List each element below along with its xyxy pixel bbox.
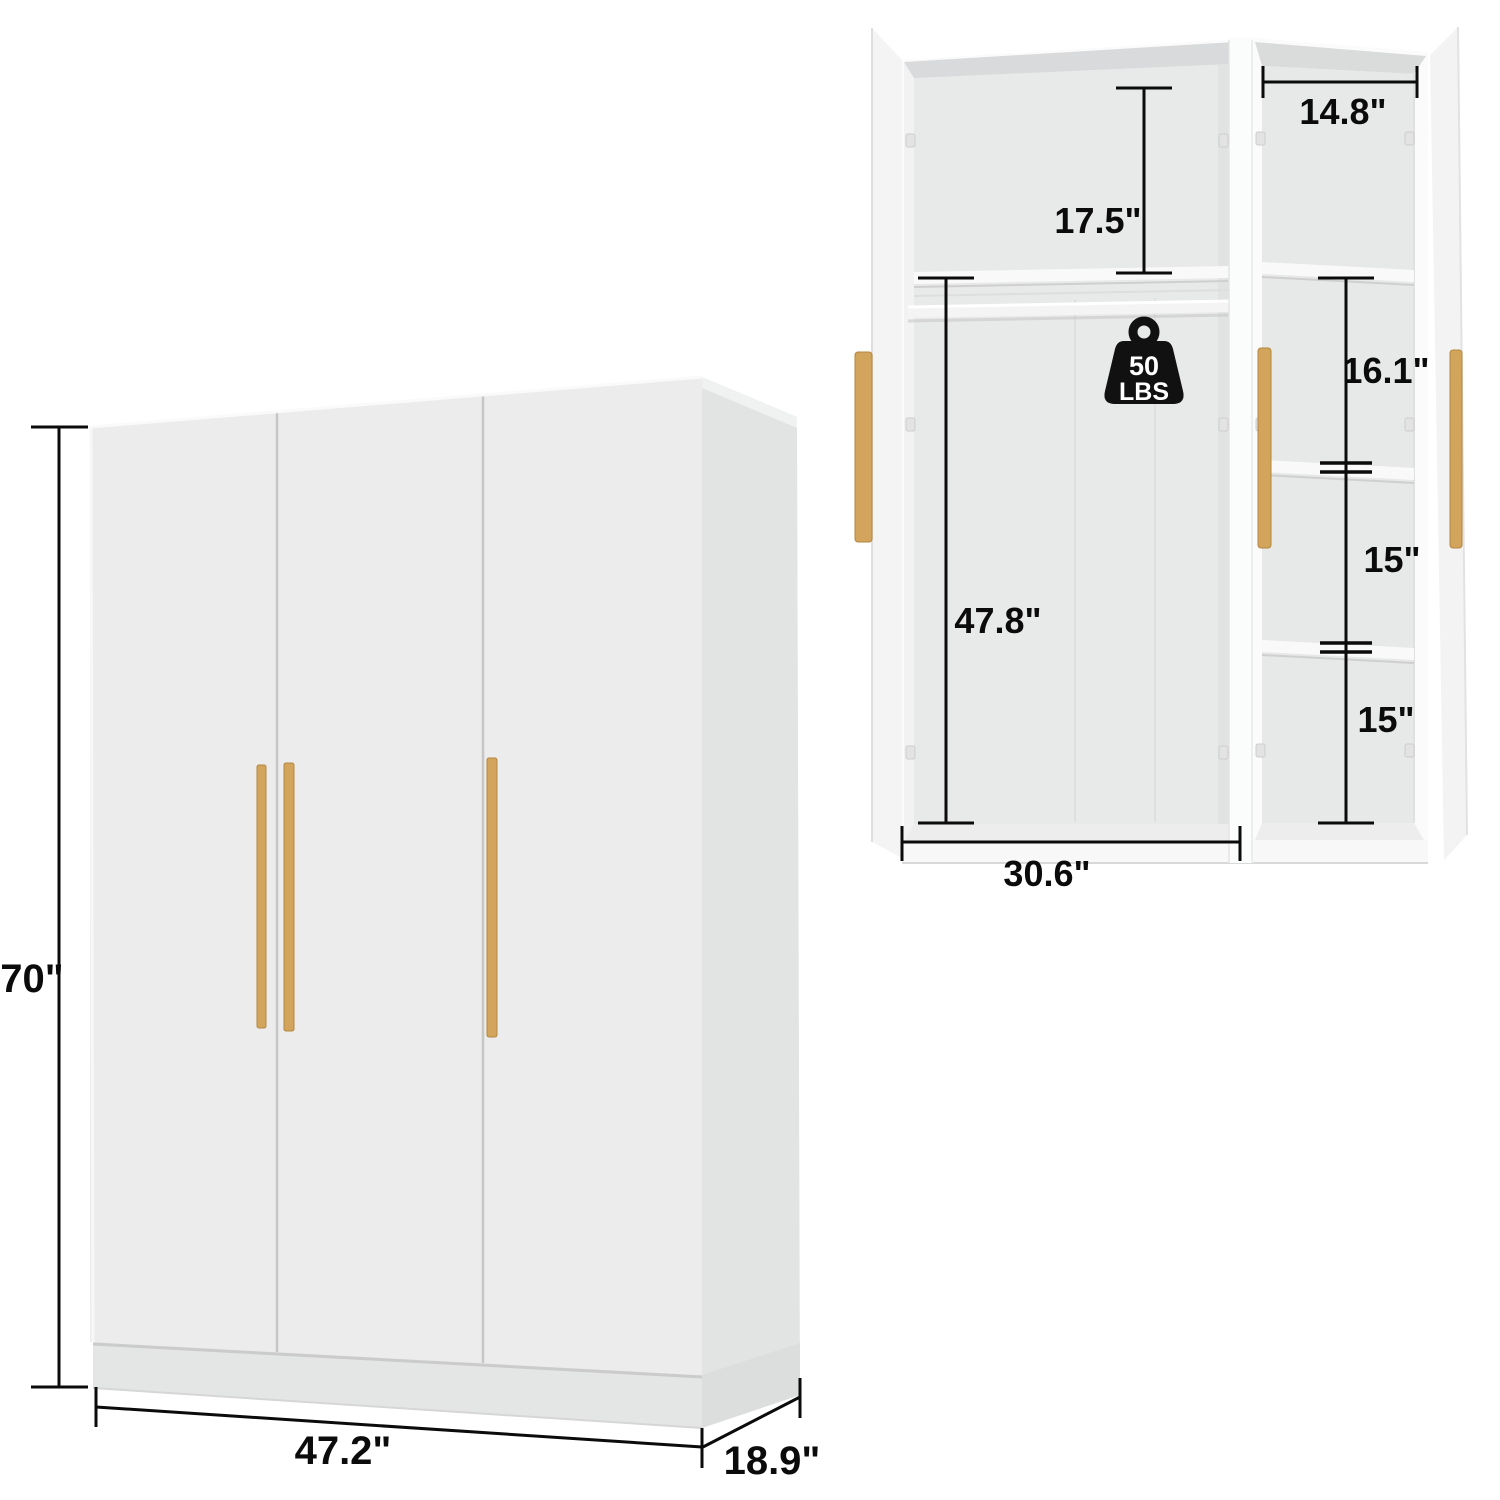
hinge-icon — [1405, 132, 1414, 145]
center-divider — [1229, 38, 1253, 863]
hinge-icon — [1256, 744, 1265, 757]
door-handle-3 — [487, 758, 497, 1037]
open-door-handle-right — [1450, 350, 1462, 548]
height-label: 70" — [0, 957, 63, 1001]
main-interior-floor — [904, 824, 1240, 842]
right-section-2-label: 15" — [1363, 539, 1420, 580]
width-label: 47.2" — [295, 1429, 392, 1473]
depth-label: 18.9" — [724, 1439, 821, 1483]
door-handle-1 — [257, 765, 266, 1028]
hinge-icon — [1219, 134, 1228, 147]
right-column-floor — [1255, 823, 1424, 840]
hinge-icon — [1405, 744, 1414, 757]
hanging-height-label: 47.8" — [954, 600, 1041, 641]
open-wardrobe-view: 50 LBS 17.5" 47.8" 30.6" — [855, 27, 1467, 894]
wardrobe-dimension-diagram: 70" 47.2" 18.9" — [0, 0, 1500, 1500]
diagram-scene: 70" 47.2" 18.9" — [0, 0, 1500, 1500]
dimension-height-70: 70" — [0, 427, 88, 1387]
open-door-handle-middle — [1258, 348, 1271, 548]
wardrobe-front-doors — [90, 377, 702, 1375]
hinge-icon — [906, 134, 915, 147]
closed-wardrobe-view: 70" 47.2" 18.9" — [0, 377, 820, 1483]
wardrobe-side-panel — [702, 377, 800, 1428]
right-column-width-label: 14.8" — [1299, 91, 1386, 132]
open-door-left — [872, 28, 902, 858]
main-interior-right-wall — [1218, 64, 1229, 824]
open-door-handle-left — [855, 352, 872, 542]
main-width-label: 30.6" — [1003, 853, 1090, 894]
main-interior-back-wall — [914, 64, 1229, 824]
right-section-1-label: 16.1" — [1342, 350, 1429, 391]
hinge-icon — [906, 746, 915, 759]
main-interior-left-wall — [904, 62, 914, 842]
wardrobe-left-edge-highlight — [91, 427, 93, 1342]
hinge-icon — [1256, 132, 1265, 145]
top-section-label: 17.5" — [1054, 200, 1141, 241]
hinge-icon — [1219, 418, 1228, 431]
weight-value-label: 50 — [1129, 351, 1159, 381]
hinge-icon — [1219, 746, 1228, 759]
hinge-icon — [906, 418, 915, 431]
hinge-icon — [1405, 418, 1414, 431]
right-section-3-label: 15" — [1357, 699, 1414, 740]
weight-unit-label: LBS — [1119, 378, 1169, 406]
right-bottom-band — [1253, 840, 1428, 863]
door-handle-2 — [284, 763, 294, 1031]
